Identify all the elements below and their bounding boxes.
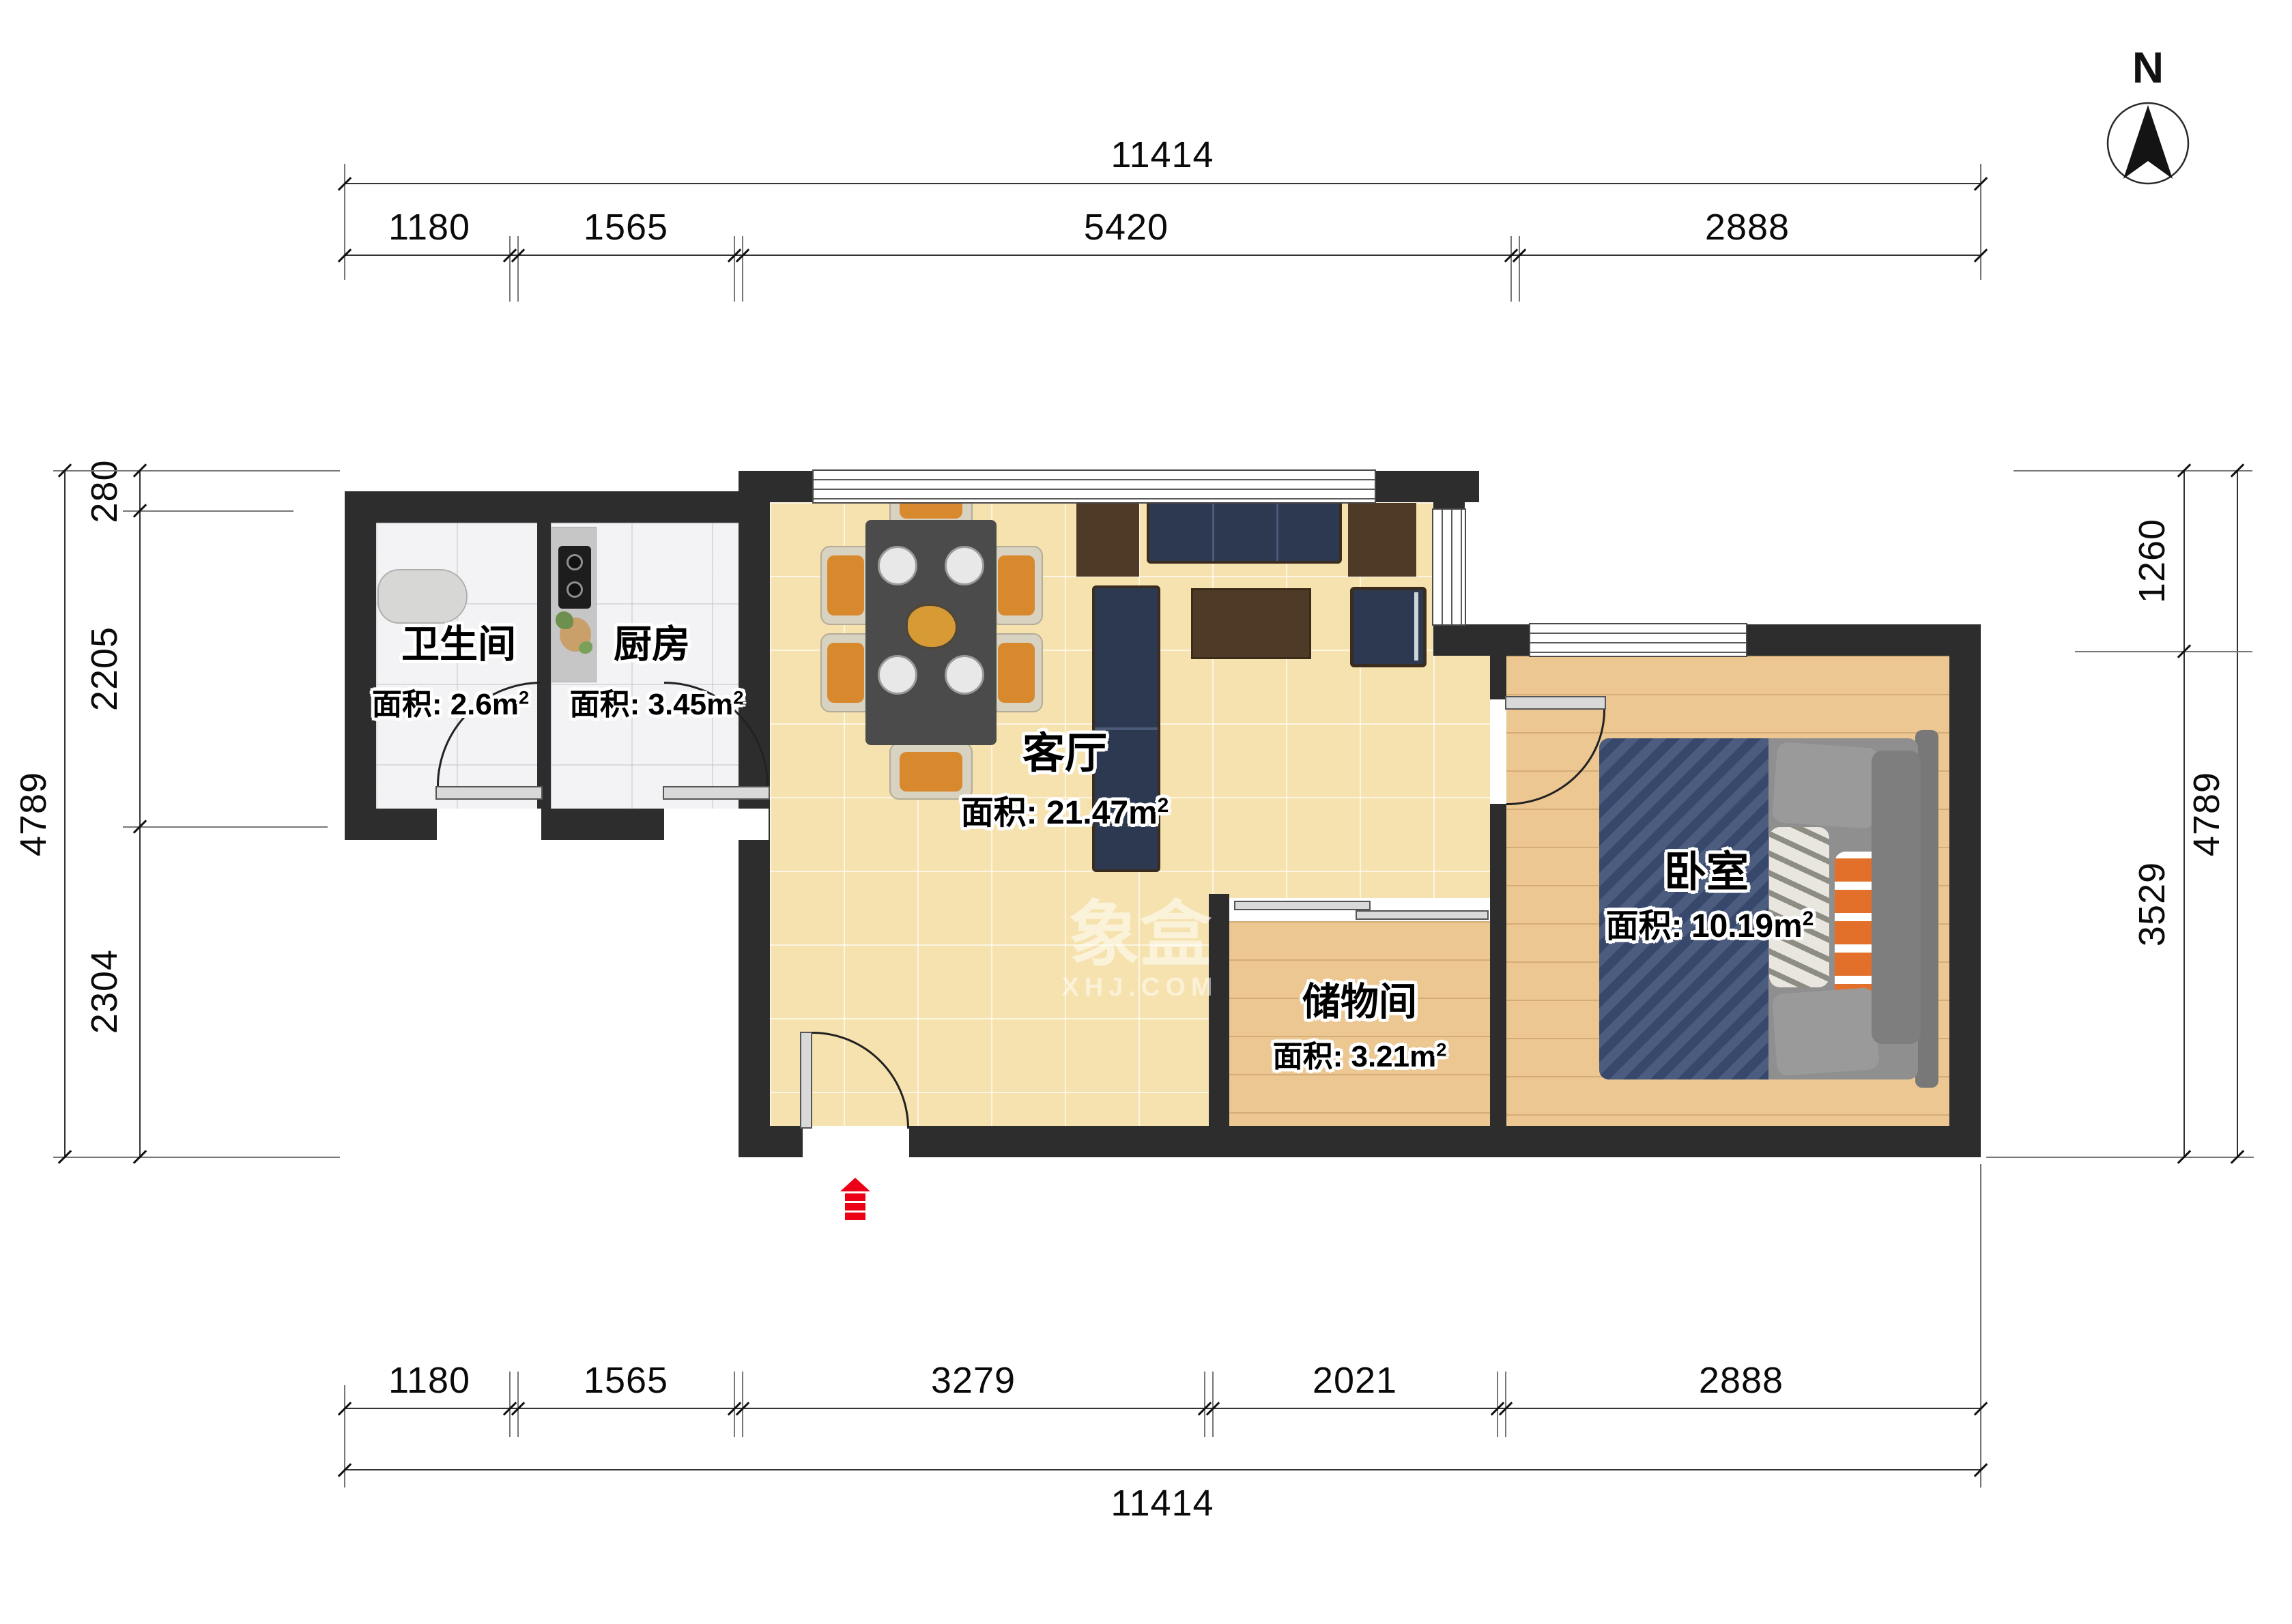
dim-top-seg-0: 1180 bbox=[354, 206, 504, 248]
entrance-arrow-bar bbox=[845, 1213, 865, 1220]
side-table-left bbox=[1076, 503, 1139, 577]
storage-area: 面积: 3.21m2 bbox=[1273, 1032, 1447, 1075]
entrance-arrow-bar bbox=[845, 1193, 865, 1201]
ext-line bbox=[1212, 1372, 1214, 1437]
bedroom-label: 卧室 bbox=[1664, 837, 1749, 899]
dim-bottom-seg-3: 2021 bbox=[1280, 1359, 1430, 1402]
dim-left-total: 4789 bbox=[12, 739, 53, 889]
dim-left-outer-line bbox=[64, 471, 66, 1157]
coffee-table bbox=[1191, 588, 1311, 659]
bathroom-area: 面积: 2.6m2 bbox=[372, 680, 529, 723]
plate-2 bbox=[945, 546, 984, 585]
dining-chair-bottom-cushion bbox=[900, 752, 962, 792]
ext-line bbox=[1986, 1157, 2254, 1158]
dining-chair-right-1-cushion bbox=[998, 555, 1035, 615]
plate-1 bbox=[878, 546, 917, 585]
wall-bath-top bbox=[345, 491, 770, 523]
ext-line bbox=[53, 470, 340, 472]
ext-line bbox=[517, 1372, 519, 1437]
bathroom-label: 卫生间 bbox=[401, 614, 516, 669]
ext-line bbox=[742, 236, 743, 302]
ext-line bbox=[509, 236, 511, 302]
bedroom-area: 面积: 10.19m2 bbox=[1606, 899, 1814, 946]
kitchen-door-slab bbox=[663, 786, 770, 800]
living-label: 客厅 bbox=[1022, 719, 1107, 780]
ext-line bbox=[742, 1372, 743, 1437]
ext-line bbox=[344, 1385, 345, 1488]
ext-line bbox=[1519, 236, 1520, 302]
dim-bottom-seg-line bbox=[345, 1408, 1981, 1409]
ext-line bbox=[1505, 1372, 1506, 1437]
stove-burner-1 bbox=[567, 554, 583, 570]
ext-line bbox=[1510, 236, 1512, 302]
dim-top-seg-line bbox=[345, 255, 1981, 256]
dim-bottom-seg-4: 2888 bbox=[1666, 1359, 1816, 1402]
wall-bath-left bbox=[345, 491, 376, 840]
dim-bottom-total: 11414 bbox=[1087, 1482, 1237, 1524]
dim-right-total: 4789 bbox=[2186, 739, 2226, 889]
ext-line bbox=[1980, 1164, 1981, 1488]
storage-slider-1 bbox=[1234, 901, 1371, 910]
dim-bottom-total-line bbox=[345, 1469, 1981, 1470]
dim-top-seg-2: 5420 bbox=[1051, 206, 1201, 248]
watermark-subtitle: XHJ.COM bbox=[1044, 973, 1235, 1002]
living-side-window bbox=[1432, 508, 1466, 626]
dim-left-inner-line bbox=[139, 471, 141, 1157]
dim-right-inner-line bbox=[2183, 471, 2185, 1157]
living-area: 面积: 21.47m2 bbox=[961, 785, 1169, 833]
entrance-arrow-bar bbox=[845, 1203, 865, 1210]
dim-left-seg-1: 2205 bbox=[83, 594, 124, 744]
entrance-door-slab bbox=[800, 1032, 812, 1129]
ext-line bbox=[2014, 470, 2252, 472]
dim-top-total-line bbox=[345, 183, 1981, 184]
entrance-arrow-head bbox=[840, 1178, 870, 1191]
dim-right-outer-line bbox=[2237, 471, 2238, 1157]
ext-line bbox=[123, 826, 328, 828]
wall-bottom bbox=[739, 1126, 1981, 1157]
outside-patch bbox=[1465, 502, 1492, 626]
living-window bbox=[812, 469, 1376, 504]
ext-line bbox=[2075, 651, 2252, 652]
dining-chair-left-2-cushion bbox=[827, 643, 864, 703]
dim-top-seg-1: 1565 bbox=[551, 206, 701, 248]
bedroom-door-gap bbox=[1490, 699, 1506, 804]
bathroom-door-slab bbox=[435, 786, 543, 800]
stove-burner-2 bbox=[567, 581, 583, 598]
ext-line bbox=[734, 1372, 735, 1437]
armchair-rail bbox=[1414, 592, 1418, 661]
plate-3 bbox=[878, 655, 917, 695]
dim-left-seg-2: 2304 bbox=[83, 916, 124, 1067]
ext-line bbox=[734, 236, 735, 302]
ext-line bbox=[123, 510, 293, 512]
watermark: 象盒 XHJ.COM bbox=[1044, 898, 1235, 1002]
dim-right-seg-1: 3529 bbox=[2131, 829, 2172, 979]
ext-line bbox=[1204, 1372, 1205, 1437]
pillow-gray-top bbox=[1772, 742, 1880, 829]
dim-right-seg-0: 1260 bbox=[2131, 486, 2172, 636]
plate-4 bbox=[945, 655, 984, 695]
dim-top-seg-3: 2888 bbox=[1672, 206, 1822, 248]
ext-line bbox=[509, 1372, 511, 1437]
compass bbox=[2106, 101, 2190, 186]
side-table-right bbox=[1348, 503, 1416, 577]
wall-right bbox=[1949, 624, 1981, 1157]
dining-chair-left-1-cushion bbox=[827, 555, 864, 615]
pillow-gray-bottom bbox=[1772, 987, 1880, 1076]
pillow-gray-back bbox=[1872, 751, 1921, 1044]
ext-line bbox=[517, 236, 519, 302]
table-centerpiece bbox=[908, 606, 956, 647]
watermark-title: 象盒 bbox=[1044, 898, 1235, 973]
bathroom-door-gap bbox=[437, 809, 541, 840]
north-label: N bbox=[2121, 42, 2175, 93]
dim-bottom-seg-0: 1180 bbox=[354, 1359, 504, 1402]
floor-plan-canvas: 卫生间 面积: 2.6m2 厨房 面积: 3.45m2 客厅 面积: 21.47… bbox=[0, 0, 2292, 1624]
storage-slider-2 bbox=[1356, 910, 1489, 920]
dim-bottom-seg-1: 1565 bbox=[551, 1359, 701, 1402]
bedroom-door-slab bbox=[1505, 696, 1606, 710]
kitchen-door-gap bbox=[664, 809, 769, 840]
dim-left-seg-0: 280 bbox=[83, 416, 124, 566]
compass-icon bbox=[2106, 101, 2190, 186]
kitchen-label: 厨房 bbox=[614, 614, 690, 669]
ext-line bbox=[53, 1157, 340, 1158]
kitchen-area: 面积: 3.45m2 bbox=[570, 680, 744, 723]
storage-label: 储物间 bbox=[1302, 972, 1417, 1027]
plant-leaves bbox=[556, 611, 573, 629]
entrance-gap bbox=[803, 1126, 909, 1157]
bedroom-window bbox=[1529, 623, 1747, 657]
dim-bottom-seg-2: 3279 bbox=[898, 1359, 1048, 1402]
dim-top-total: 11414 bbox=[1087, 134, 1237, 176]
dining-chair-right-2-cushion bbox=[998, 643, 1035, 703]
ext-line bbox=[1497, 1372, 1498, 1437]
entrance-arrow bbox=[840, 1178, 870, 1220]
